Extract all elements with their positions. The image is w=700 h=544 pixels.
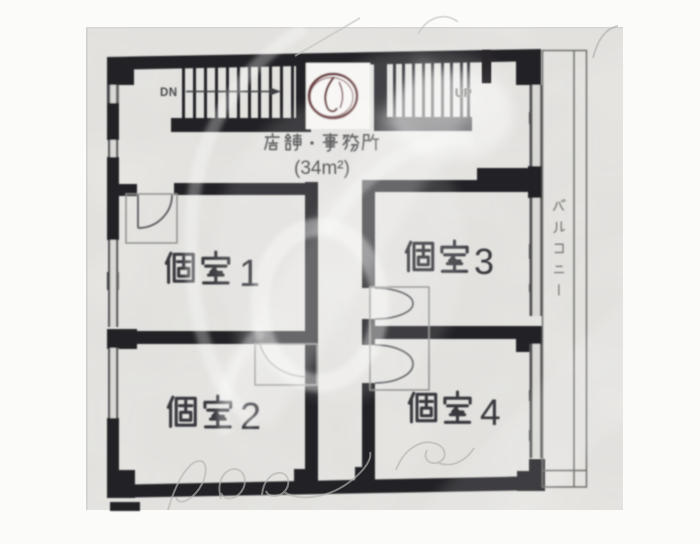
- svg-text:DN: DN: [160, 87, 178, 99]
- svg-text:4: 4: [480, 392, 501, 433]
- svg-text:UP: UP: [455, 86, 472, 100]
- svg-text:3: 3: [474, 241, 494, 282]
